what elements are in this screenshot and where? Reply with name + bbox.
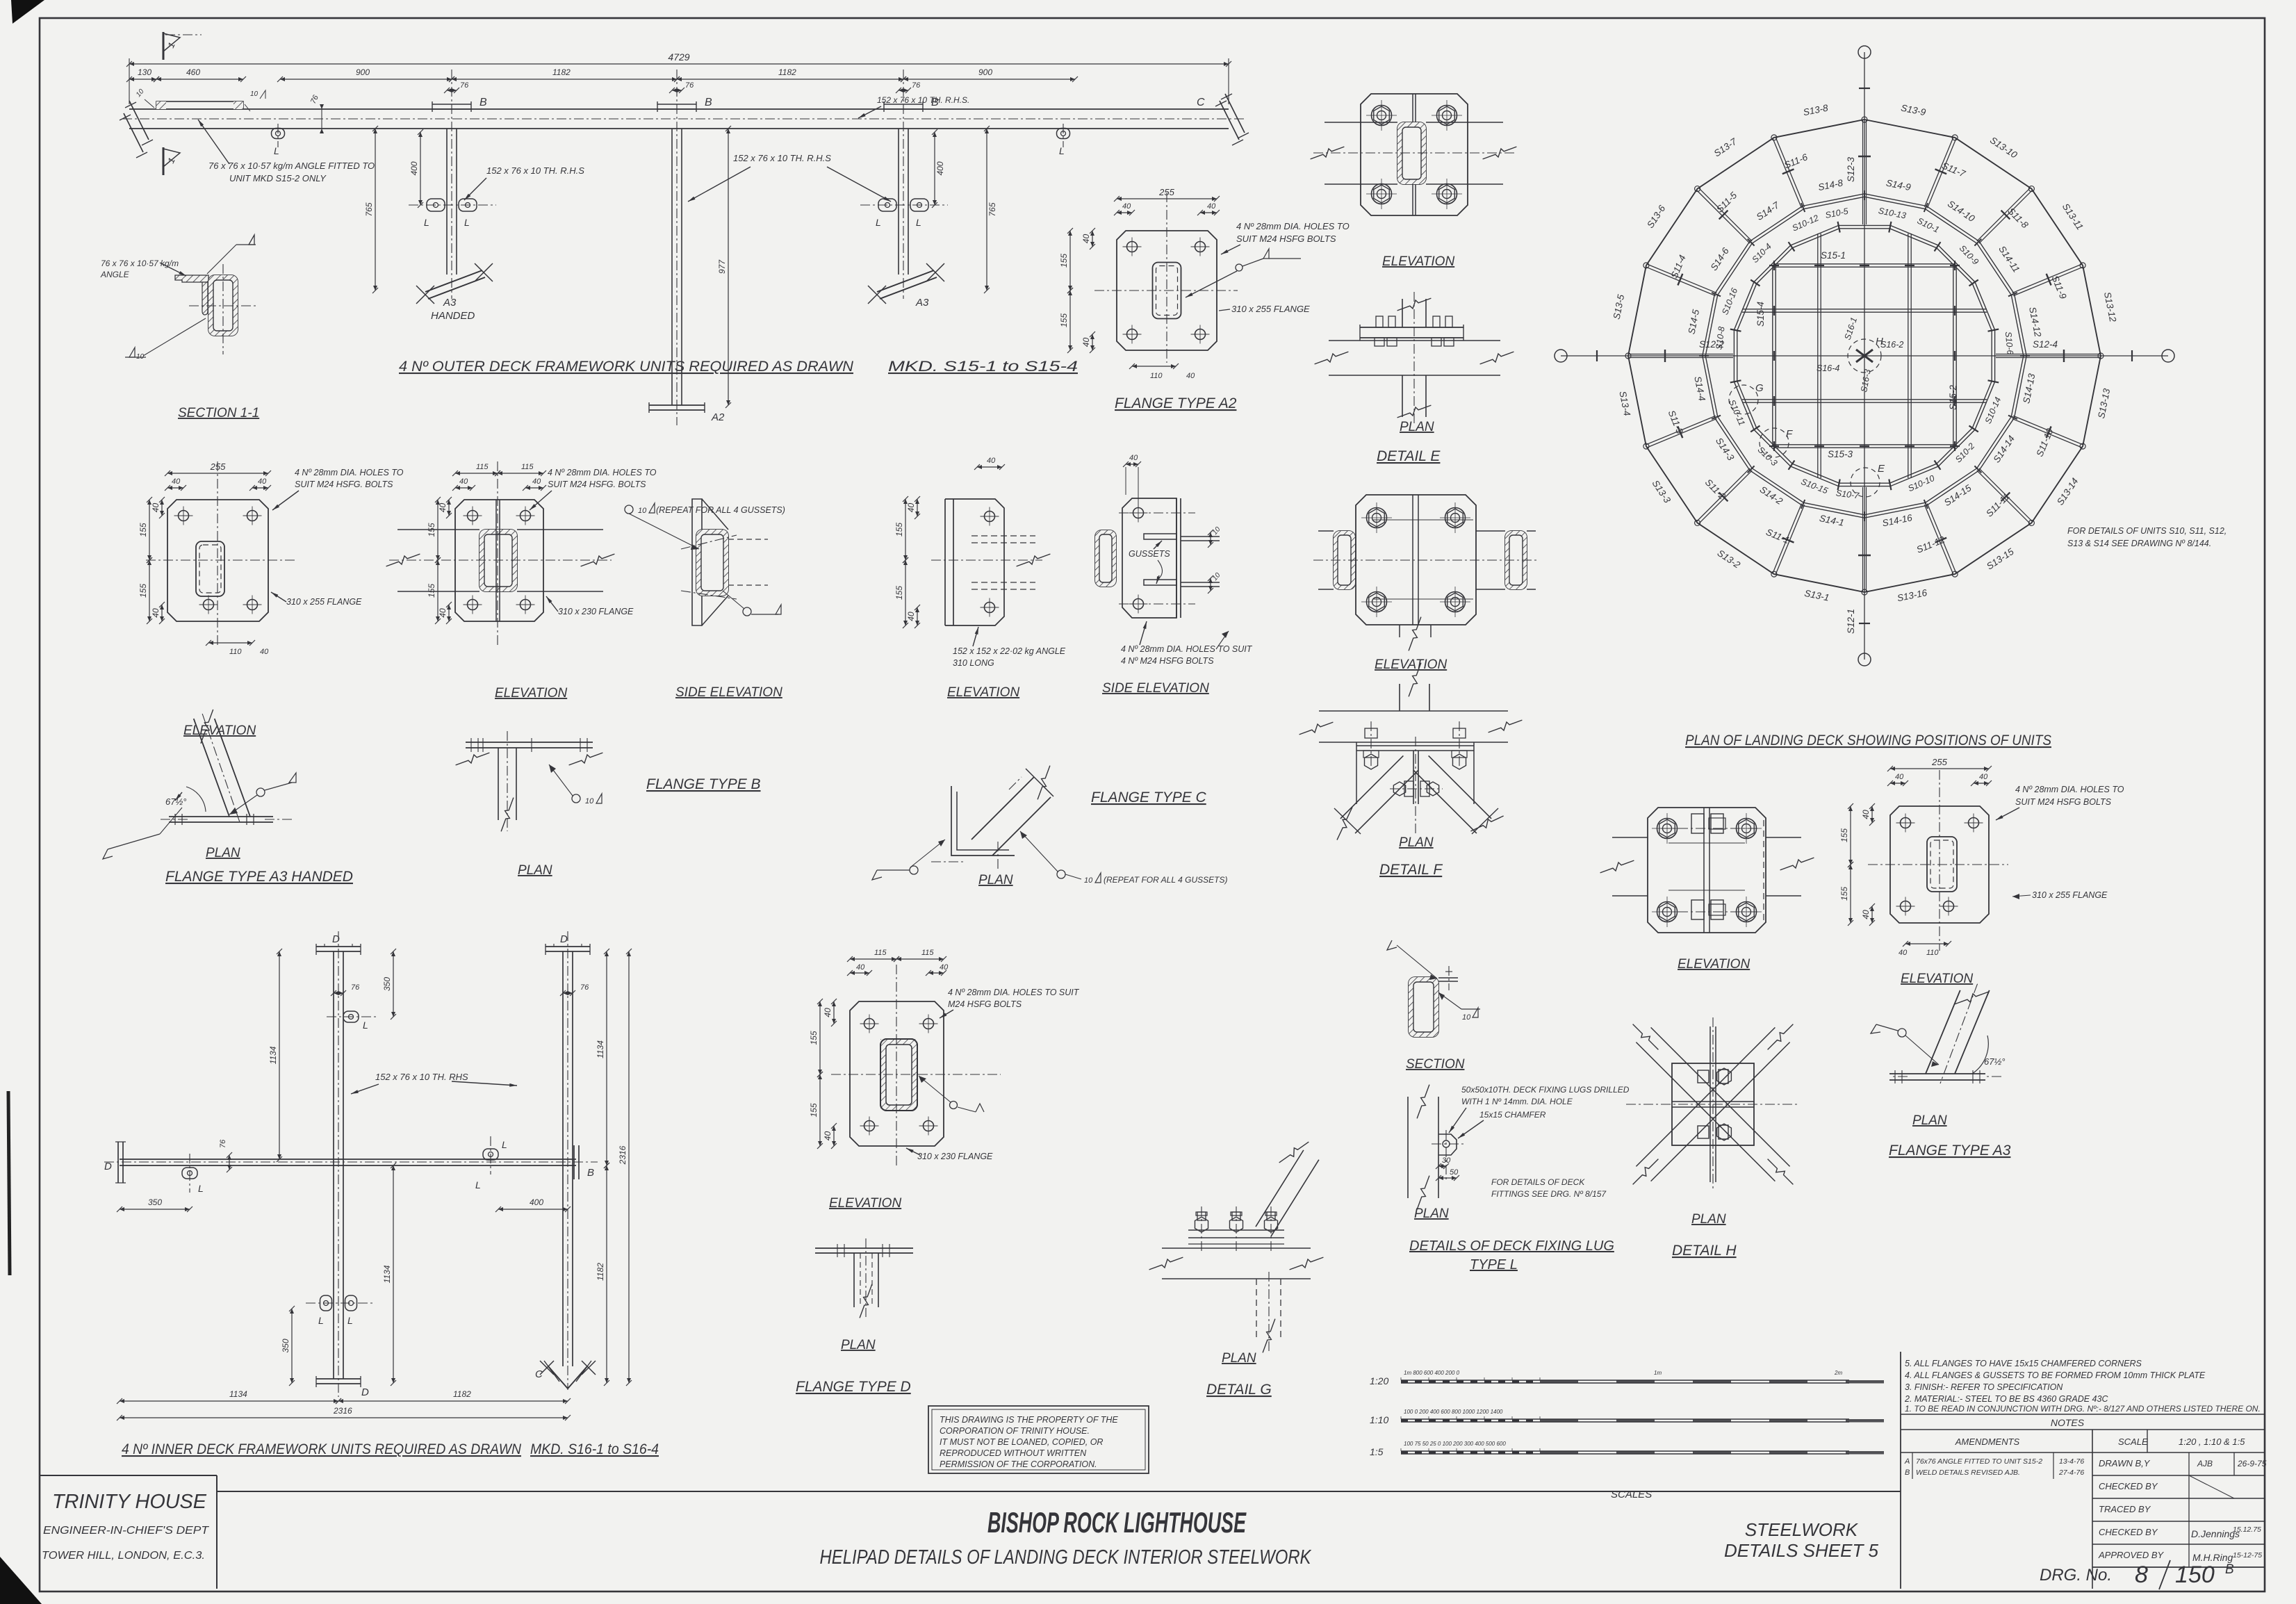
svg-text:SUIT M24 HSFG. BOLTS: SUIT M24 HSFG. BOLTS	[548, 480, 646, 489]
svg-text:1m 800 600 400 200 0: 1m 800 600 400 200 0	[1404, 1370, 1460, 1376]
svg-text:310 x 230 FLANGE: 310 x 230 FLANGE	[917, 1152, 993, 1161]
svg-text:2316: 2316	[618, 1145, 628, 1165]
svg-text:1134: 1134	[596, 1040, 605, 1058]
svg-text:155: 155	[427, 523, 436, 537]
svg-text:DRG. No.: DRG. No.	[2040, 1566, 2112, 1585]
svg-text:ELEVATION: ELEVATION	[1678, 957, 1750, 972]
svg-text:350: 350	[382, 977, 392, 991]
svg-text:DETAIL F: DETAIL F	[1379, 862, 1443, 878]
svg-text:PLAN: PLAN	[841, 1338, 876, 1352]
svg-text:HANDED: HANDED	[431, 310, 475, 322]
svg-text:L: L	[318, 1315, 324, 1326]
svg-text:FLANGE TYPE B: FLANGE TYPE B	[646, 776, 761, 792]
svg-text:S16-4: S16-4	[1817, 363, 1839, 373]
svg-text:D: D	[560, 933, 568, 945]
svg-text:100 0 200 400 6: 100 0 200 400 600 800 1000 1200 1400	[1404, 1409, 1503, 1415]
svg-text:ELEVATION: ELEVATION	[947, 685, 1019, 700]
svg-text:76x76 ANGLE FITTED TO UNIT S15: 76x76 ANGLE FITTED TO UNIT S15-2	[1916, 1457, 2042, 1466]
svg-text:B: B	[479, 97, 487, 108]
svg-text:152 x 76 x 10 TH. R.H.S: 152 x 76 x 10 TH. R.H.S	[733, 153, 831, 163]
svg-text:PLAN: PLAN	[518, 863, 552, 878]
svg-text:L: L	[464, 217, 470, 228]
svg-text:76 x 76 x 10·57 kg/m ANGLE FI: 76 x 76 x 10·57 kg/m ANGLE FITTED TO	[208, 161, 375, 171]
svg-text:40: 40	[1129, 454, 1138, 462]
svg-text:27-4-76: 27-4-76	[2058, 1468, 2084, 1477]
svg-text:B: B	[587, 1167, 594, 1179]
svg-text:110: 110	[1926, 949, 1939, 957]
svg-text:ELEVATION: ELEVATION	[495, 686, 567, 701]
svg-text:UNIT MKD S15-2 ONLY: UNIT MKD S15-2 ONLY	[229, 173, 327, 183]
svg-text:THIS DRAWING IS THE PROPER: THIS DRAWING IS THE PROPERTY OF THE	[940, 1415, 1118, 1425]
svg-text:1:5: 1:5	[1370, 1446, 1384, 1457]
svg-text:PLAN: PLAN	[978, 873, 1013, 887]
svg-text:ELEVATION: ELEVATION	[1382, 254, 1454, 269]
svg-text:A: A	[1904, 1457, 1910, 1466]
svg-text:115: 115	[521, 463, 534, 471]
svg-text:FITTINGS SEE DRG. Nº 8/157: FITTINGS SEE DRG. Nº 8/157	[1491, 1189, 1607, 1199]
svg-text:310 x 230 FLANGE: 310 x 230 FLANGE	[558, 607, 634, 616]
svg-text:10: 10	[1084, 876, 1093, 885]
svg-text:PLAN: PLAN	[1691, 1212, 1726, 1227]
svg-text:S12-4: S12-4	[2033, 339, 2058, 350]
svg-text:G: G	[1755, 382, 1764, 394]
svg-text:S16-2: S16-2	[1880, 340, 1903, 350]
svg-text:3. FINISH:- REFER TO SPEC: 3. FINISH:- REFER TO SPECIFICATION	[1905, 1382, 2063, 1392]
svg-text:SECTION: SECTION	[1406, 1057, 1465, 1072]
svg-text:110: 110	[229, 648, 242, 656]
svg-text:977: 977	[717, 259, 727, 274]
svg-text:1182: 1182	[552, 67, 571, 77]
svg-text:40: 40	[260, 648, 269, 656]
svg-text:1m: 1m	[1654, 1370, 1662, 1376]
svg-text:DRAWN B,Y: DRAWN B,Y	[2099, 1458, 2151, 1468]
svg-text:REPRODUCED WITHOUT WRITTEN: REPRODUCED WITHOUT WRITTEN	[940, 1448, 1087, 1458]
svg-text:50x50x10TH. DECK FIXING LUGS D: 50x50x10TH. DECK FIXING LUGS DRILLED	[1461, 1085, 1630, 1095]
svg-text:115: 115	[921, 949, 934, 957]
svg-text:1:10: 1:10	[1370, 1414, 1388, 1425]
svg-text:L: L	[198, 1183, 204, 1194]
svg-text:WITH 1 Nº 14mm. DIA. HOLE: WITH 1 Nº 14mm. DIA. HOLE	[1461, 1097, 1573, 1106]
svg-text:HELIPAD DETAILS OF LANDING: HELIPAD DETAILS OF LANDING DECK INTERIOR…	[820, 1546, 1312, 1569]
svg-text:GUSSETS: GUSSETS	[1129, 549, 1170, 559]
svg-text:40: 40	[1861, 810, 1871, 819]
svg-text:(REPEAT FOR ALL 4 GUSSETS): (REPEAT FOR ALL 4 GUSSETS)	[1104, 875, 1228, 885]
svg-text:FLANGE TYPE A2: FLANGE TYPE A2	[1115, 395, 1237, 411]
svg-text:DETAILS OF DECK FIXING LUG: DETAILS OF DECK FIXING LUG	[1409, 1238, 1614, 1254]
svg-text:67½°: 67½°	[165, 796, 187, 807]
svg-text:APPROVED BY: APPROVED BY	[2098, 1550, 2165, 1560]
svg-text:400: 400	[935, 161, 945, 175]
svg-text:155: 155	[1059, 254, 1069, 268]
svg-text:40: 40	[1979, 773, 1988, 781]
svg-text:5. ALL FLANGES TO HAVE 15x: 5. ALL FLANGES TO HAVE 15x15 CHAMFERED C…	[1905, 1359, 2142, 1368]
svg-text:460: 460	[186, 67, 200, 77]
svg-text:ANGLE: ANGLE	[100, 270, 130, 279]
svg-text:4 Nº M24 HSFG BOLTS: 4 Nº M24 HSFG BOLTS	[1121, 656, 1214, 666]
svg-text:15-12-75: 15-12-75	[2233, 1551, 2262, 1560]
svg-text:15x15 CHAMFER: 15x15 CHAMFER	[1479, 1110, 1546, 1120]
svg-text:40: 40	[823, 1131, 833, 1141]
svg-text:TOWER HILL, LONDON, E.C.3.: TOWER HILL, LONDON, E.C.3.	[42, 1550, 205, 1562]
svg-text:M24 HSFG BOLTS: M24 HSFG BOLTS	[948, 999, 1022, 1009]
svg-text:A3: A3	[915, 297, 929, 309]
svg-text:B: B	[705, 97, 712, 108]
svg-text:4 Nº 28mm DIA. HOLES TO: 4 Nº 28mm DIA. HOLES TO	[2015, 785, 2124, 794]
svg-text:40: 40	[1081, 234, 1091, 244]
svg-text:SUIT M24 HSFG BOLTS: SUIT M24 HSFG BOLTS	[2015, 797, 2112, 807]
svg-text:A3: A3	[443, 297, 457, 309]
svg-text:SUIT M24 HSFG. BOLTS: SUIT M24 HSFG. BOLTS	[295, 480, 393, 489]
svg-text:C: C	[1197, 97, 1205, 108]
svg-text:255: 255	[210, 461, 226, 472]
svg-text:155: 155	[427, 584, 436, 598]
svg-text:B: B	[1905, 1468, 1910, 1477]
svg-text:4 Nº 28mm DIA. HOLES TO: 4 Nº 28mm DIA. HOLES TO	[295, 468, 404, 477]
svg-text:4 Nº 28mm DIA. HOLES TO: 4 Nº 28mm DIA. HOLES TO	[548, 468, 657, 477]
svg-text:DETAIL E: DETAIL E	[1377, 448, 1441, 464]
svg-text:L: L	[363, 1020, 368, 1031]
svg-text:DETAILS SHEET 5: DETAILS SHEET 5	[1724, 1540, 1879, 1561]
svg-text:TYPE L: TYPE L	[1470, 1257, 1518, 1272]
svg-text:40: 40	[940, 963, 949, 972]
svg-text:40: 40	[906, 612, 916, 621]
svg-text:DETAIL G: DETAIL G	[1206, 1382, 1272, 1398]
svg-text:10: 10	[250, 90, 259, 98]
svg-text:IT MUST NOT BE LOANED, CO: IT MUST NOT BE LOANED, COPIED, OR	[940, 1437, 1103, 1447]
svg-text:CORPORATION OF TRINITY HOUS: CORPORATION OF TRINITY HOUSE.	[940, 1426, 1090, 1436]
svg-text:40: 40	[823, 1008, 833, 1017]
svg-text:350: 350	[281, 1339, 290, 1352]
svg-text:100 75 50 25 0 100: 100 75 50 25 0 100 200 300 400 500 600	[1404, 1441, 1506, 1447]
svg-text:155: 155	[809, 1103, 819, 1117]
svg-text:PLAN: PLAN	[1414, 1206, 1449, 1221]
svg-text:4 Nº 28mm DIA. HOLES TO SUIT: 4 Nº 28mm DIA. HOLES TO SUIT	[948, 988, 1080, 997]
svg-text:AMENDMENTS: AMENDMENTS	[1955, 1437, 2020, 1447]
svg-text:8: 8	[2135, 1562, 2148, 1588]
svg-text:A2: A2	[711, 411, 725, 423]
svg-text:40: 40	[1122, 202, 1131, 211]
svg-text:76: 76	[912, 81, 921, 90]
svg-text:E: E	[1878, 463, 1885, 475]
svg-text:ELEVATION: ELEVATION	[183, 723, 256, 738]
svg-text:40: 40	[1207, 202, 1216, 211]
svg-text:110: 110	[1150, 372, 1163, 380]
svg-text:PLAN: PLAN	[1222, 1351, 1256, 1366]
svg-text:4 Nº 28mm DIA. HOLES TO: 4 Nº 28mm DIA. HOLES TO	[1236, 221, 1350, 231]
svg-text:40: 40	[987, 457, 996, 465]
svg-text:76: 76	[460, 81, 469, 90]
svg-text:155: 155	[894, 586, 904, 600]
svg-text:L: L	[916, 217, 921, 228]
svg-text:SECTION 1-1: SECTION 1-1	[178, 406, 259, 420]
svg-text:PLAN: PLAN	[1912, 1113, 1947, 1128]
svg-text:40: 40	[1895, 773, 1904, 781]
svg-text:D: D	[104, 1161, 112, 1172]
svg-text:67½°: 67½°	[1984, 1056, 2006, 1067]
svg-text:76: 76	[685, 81, 694, 90]
svg-text:10: 10	[585, 797, 594, 805]
svg-text:(REPEAT FOR ALL 4 GUSSETS): (REPEAT FOR ALL 4 GUSSETS)	[656, 505, 785, 515]
svg-text:4 Nº INNER DECK FRAMEWORK: 4 Nº INNER DECK FRAMEWORK UNITS REQUIRED…	[122, 1441, 522, 1457]
svg-text:1182: 1182	[453, 1389, 471, 1399]
svg-text:STEELWORK: STEELWORK	[1745, 1519, 1859, 1540]
svg-text:SIDE ELEVATION: SIDE ELEVATION	[675, 685, 782, 700]
svg-text:WELD DETAILS REVISED AJ: WELD DETAILS REVISED AJB.	[1916, 1468, 2020, 1477]
svg-text:D: D	[361, 1386, 369, 1398]
svg-text:40: 40	[151, 608, 161, 618]
svg-text:40: 40	[258, 477, 267, 486]
svg-text:SUIT M24 HSFG BOLTS: SUIT M24 HSFG BOLTS	[1236, 234, 1336, 244]
svg-text:765: 765	[987, 202, 997, 216]
svg-text:152 x 76 x 10 TH. RHS: 152 x 76 x 10 TH. RHS	[375, 1072, 468, 1082]
svg-text:155: 155	[138, 584, 148, 598]
svg-text:115: 115	[476, 463, 489, 471]
svg-text:SCALES: SCALES	[1611, 1489, 1652, 1500]
svg-text:4729: 4729	[668, 51, 689, 63]
svg-text:1182: 1182	[778, 67, 796, 77]
svg-text:40: 40	[1899, 949, 1908, 957]
svg-text:FOR DETAILS OF DECK: FOR DETAILS OF DECK	[1491, 1177, 1585, 1187]
svg-text:1:20: 1:20	[1370, 1375, 1388, 1386]
svg-text:40: 40	[438, 503, 448, 513]
svg-text:1:20 , 1:10 & 1:5: 1:20 , 1:10 & 1:5	[2179, 1437, 2245, 1447]
svg-text:13-4-76: 13-4-76	[2059, 1457, 2084, 1466]
svg-text:40: 40	[151, 503, 161, 513]
svg-text:40: 40	[906, 503, 916, 513]
svg-text:S12-2: S12-2	[1699, 339, 1725, 350]
svg-text:40: 40	[172, 477, 181, 486]
svg-text:15.12.75: 15.12.75	[2233, 1525, 2261, 1534]
svg-text:F: F	[1786, 428, 1793, 440]
svg-text:S13 & S14 SEE DRAWING Nº 8/14: S13 & S14 SEE DRAWING Nº 8/144.	[2067, 539, 2211, 548]
svg-text:4 Nº OUTER DECK FRAMEWORK: 4 Nº OUTER DECK FRAMEWORK UNITS REQUIRED…	[399, 359, 854, 375]
svg-text:1134: 1134	[268, 1046, 278, 1064]
svg-text:76: 76	[219, 1139, 227, 1148]
svg-text:155: 155	[894, 523, 904, 537]
svg-text:40: 40	[532, 477, 541, 486]
svg-text:CHECKED BY: CHECKED BY	[2099, 1481, 2158, 1491]
svg-text:1182: 1182	[596, 1263, 605, 1281]
svg-text:30: 30	[1442, 1156, 1451, 1165]
svg-text:310 x 255 FLANGE: 310 x 255 FLANGE	[1231, 304, 1310, 314]
svg-text:L: L	[1059, 145, 1065, 156]
svg-text:152 x 76 x 10 TH. R.H.S.: 152 x 76 x 10 TH. R.H.S.	[877, 95, 969, 105]
svg-text:255: 255	[1931, 757, 1947, 767]
svg-text:L: L	[502, 1139, 507, 1150]
svg-text:L: L	[274, 145, 279, 156]
svg-text:40: 40	[459, 477, 468, 486]
svg-text:SIDE ELEVATION: SIDE ELEVATION	[1102, 681, 1209, 696]
svg-text:PLAN: PLAN	[206, 846, 240, 860]
svg-text:152 x 76 x 10 TH. R.H.S: 152 x 76 x 10 TH. R.H.S	[486, 165, 584, 176]
svg-text:L: L	[475, 1179, 481, 1190]
svg-text:D: D	[332, 933, 340, 945]
svg-text:40: 40	[1081, 338, 1091, 347]
svg-text:CHECKED BY: CHECKED BY	[2099, 1527, 2158, 1537]
svg-text:26-9-75: 26-9-75	[2237, 1459, 2267, 1468]
svg-text:FOR DETAILS OF UNITS S10, S11: FOR DETAILS OF UNITS S10, S11, S12,	[2067, 526, 2227, 536]
svg-text:10: 10	[1462, 1013, 1471, 1022]
svg-text:152 x 152 x 22·02 kg ANGLE: 152 x 152 x 22·02 kg ANGLE	[953, 646, 1066, 656]
svg-text:155: 155	[1059, 313, 1069, 327]
svg-text:310 x 255 FLANGE: 310 x 255 FLANGE	[2032, 890, 2108, 900]
svg-text:155: 155	[1839, 828, 1849, 842]
svg-text:L: L	[424, 217, 429, 228]
svg-text:S15-1: S15-1	[1821, 250, 1846, 261]
svg-text:NOTES: NOTES	[2051, 1417, 2085, 1428]
svg-text:40: 40	[438, 608, 448, 618]
svg-text:AJB: AJB	[2197, 1459, 2213, 1468]
svg-text:765: 765	[364, 202, 374, 216]
svg-text:L: L	[347, 1315, 353, 1326]
svg-text:PLAN: PLAN	[1400, 420, 1434, 434]
svg-text:150: 150	[2175, 1562, 2215, 1588]
svg-text:40: 40	[1861, 910, 1871, 919]
svg-text:4 Nº 28mm DIA. HOLES TO SUIT: 4 Nº 28mm DIA. HOLES TO SUIT	[1121, 644, 1253, 654]
svg-text:MKD. S15-1 to S15-4: MKD. S15-1 to S15-4	[888, 359, 1078, 375]
svg-text:BISHOP ROCK LIGHTHOUSE: BISHOP ROCK LIGHTHOUSE	[987, 1506, 1247, 1539]
svg-text:ELEVATION: ELEVATION	[1901, 972, 1973, 986]
svg-text:B: B	[2225, 1562, 2234, 1577]
svg-text:2316: 2316	[333, 1406, 352, 1416]
svg-text:2m: 2m	[1834, 1370, 1842, 1376]
svg-text:PERMISSION OF THE CORPORATI: PERMISSION OF THE CORPORATION.	[940, 1459, 1097, 1469]
svg-text:FLANGE TYPE C: FLANGE TYPE C	[1091, 789, 1207, 805]
svg-text:S15-2: S15-2	[1948, 384, 1958, 410]
svg-text:S15-4: S15-4	[1755, 302, 1766, 327]
svg-text:DETAIL H: DETAIL H	[1672, 1243, 1737, 1259]
svg-text:FLANGE TYPE D: FLANGE TYPE D	[796, 1379, 911, 1395]
svg-text:255: 255	[1158, 187, 1174, 197]
svg-text:310 LONG: 310 LONG	[953, 658, 994, 668]
svg-text:C: C	[535, 1368, 543, 1380]
svg-text:ELEVATION: ELEVATION	[829, 1196, 901, 1211]
svg-text:FLANGE TYPE A3 HANDED: FLANGE TYPE A3 HANDED	[165, 869, 353, 885]
svg-text:155: 155	[1839, 887, 1849, 901]
svg-text:PLAN: PLAN	[1399, 835, 1434, 850]
svg-text:10: 10	[638, 507, 647, 515]
svg-text:400: 400	[530, 1197, 543, 1207]
svg-text:76: 76	[351, 983, 360, 992]
svg-text:S15-3: S15-3	[1828, 449, 1853, 459]
svg-text:40: 40	[1186, 372, 1195, 380]
svg-text:900: 900	[978, 67, 992, 77]
svg-text:ELEVATION: ELEVATION	[1375, 657, 1447, 672]
svg-text:155: 155	[138, 523, 148, 537]
svg-text:SCALE: SCALE	[2118, 1437, 2148, 1447]
svg-text:50: 50	[1450, 1168, 1459, 1177]
svg-text:TRINITY HOUSE: TRINITY HOUSE	[52, 1491, 207, 1513]
svg-text:S12-1: S12-1	[1846, 609, 1856, 634]
svg-text:L: L	[876, 217, 881, 228]
svg-text:76: 76	[580, 983, 589, 992]
svg-text:1. TO BE READ IN CONJUNCTION: 1. TO BE READ IN CONJUNCTION WITH DRG. N…	[1905, 1404, 2261, 1414]
svg-text:310 x 255 FLANGE: 310 x 255 FLANGE	[286, 597, 362, 607]
svg-text:1134: 1134	[229, 1389, 247, 1399]
svg-text:FLANGE TYPE A3: FLANGE TYPE A3	[1889, 1143, 2011, 1159]
svg-text:S10-6: S10-6	[2003, 332, 2015, 355]
svg-text:1134: 1134	[382, 1265, 392, 1283]
svg-text:400: 400	[409, 161, 419, 175]
svg-text:130: 130	[138, 67, 151, 77]
svg-text:4. ALL FLANGES & GUSSETS TO: 4. ALL FLANGES & GUSSETS TO BE FORMED FR…	[1905, 1370, 2206, 1380]
svg-text:900: 900	[356, 67, 370, 77]
svg-text:40: 40	[856, 963, 865, 972]
svg-text:MKD. S16-1 to S16-4: MKD. S16-1 to S16-4	[530, 1441, 659, 1457]
svg-text:TRACED BY: TRACED BY	[2099, 1504, 2151, 1514]
svg-text:S12-3: S12-3	[1846, 156, 1856, 182]
svg-text:ENGINEER-IN-CHIEF'S DEPT: ENGINEER-IN-CHIEF'S DEPT	[43, 1525, 210, 1537]
svg-text:115: 115	[874, 949, 887, 957]
svg-text:155: 155	[809, 1031, 819, 1045]
svg-text:PLAN OF LANDING DECK SHOWI: PLAN OF LANDING DECK SHOWING POSITIONS O…	[1685, 733, 2051, 748]
svg-text:2. MATERIAL:- STEEL TO BE: 2. MATERIAL:- STEEL TO BE BS 4360 GRADE …	[1904, 1394, 2108, 1404]
svg-text:350: 350	[148, 1197, 162, 1207]
